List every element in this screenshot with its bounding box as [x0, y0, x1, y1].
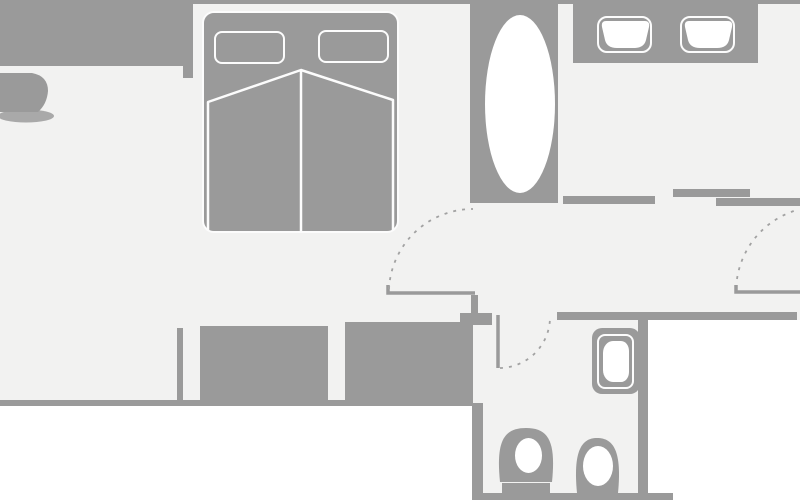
door-right-swing [737, 210, 797, 279]
toilet-right-bowl [583, 446, 613, 486]
door-main-swing [389, 209, 473, 289]
sink-left-basin [602, 21, 649, 48]
floor-plan-canvas [0, 0, 800, 500]
armchair [0, 73, 48, 112]
door-bath-swing [500, 318, 550, 368]
sink-right-basin [685, 21, 732, 48]
toilet-left-base [502, 483, 550, 493]
door-right-leaf [736, 285, 800, 292]
toilet-left-bowl [515, 438, 542, 473]
plan-overlay [0, 0, 800, 500]
door-main-leaf [388, 285, 475, 293]
